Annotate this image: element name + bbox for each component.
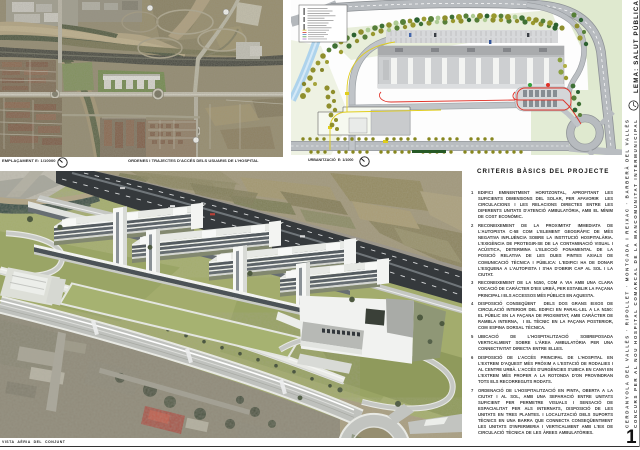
svg-text:CERDANYOLA DEL VALLÈS · RIPOLL: CERDANYOLA DEL VALLÈS · RIPOLLET · MONTC… — [625, 120, 630, 428]
svg-text:CONCURS PER AL NOU HOSPITAL CO: CONCURS PER AL NOU HOSPITAL COMARCAL DE … — [633, 120, 638, 428]
